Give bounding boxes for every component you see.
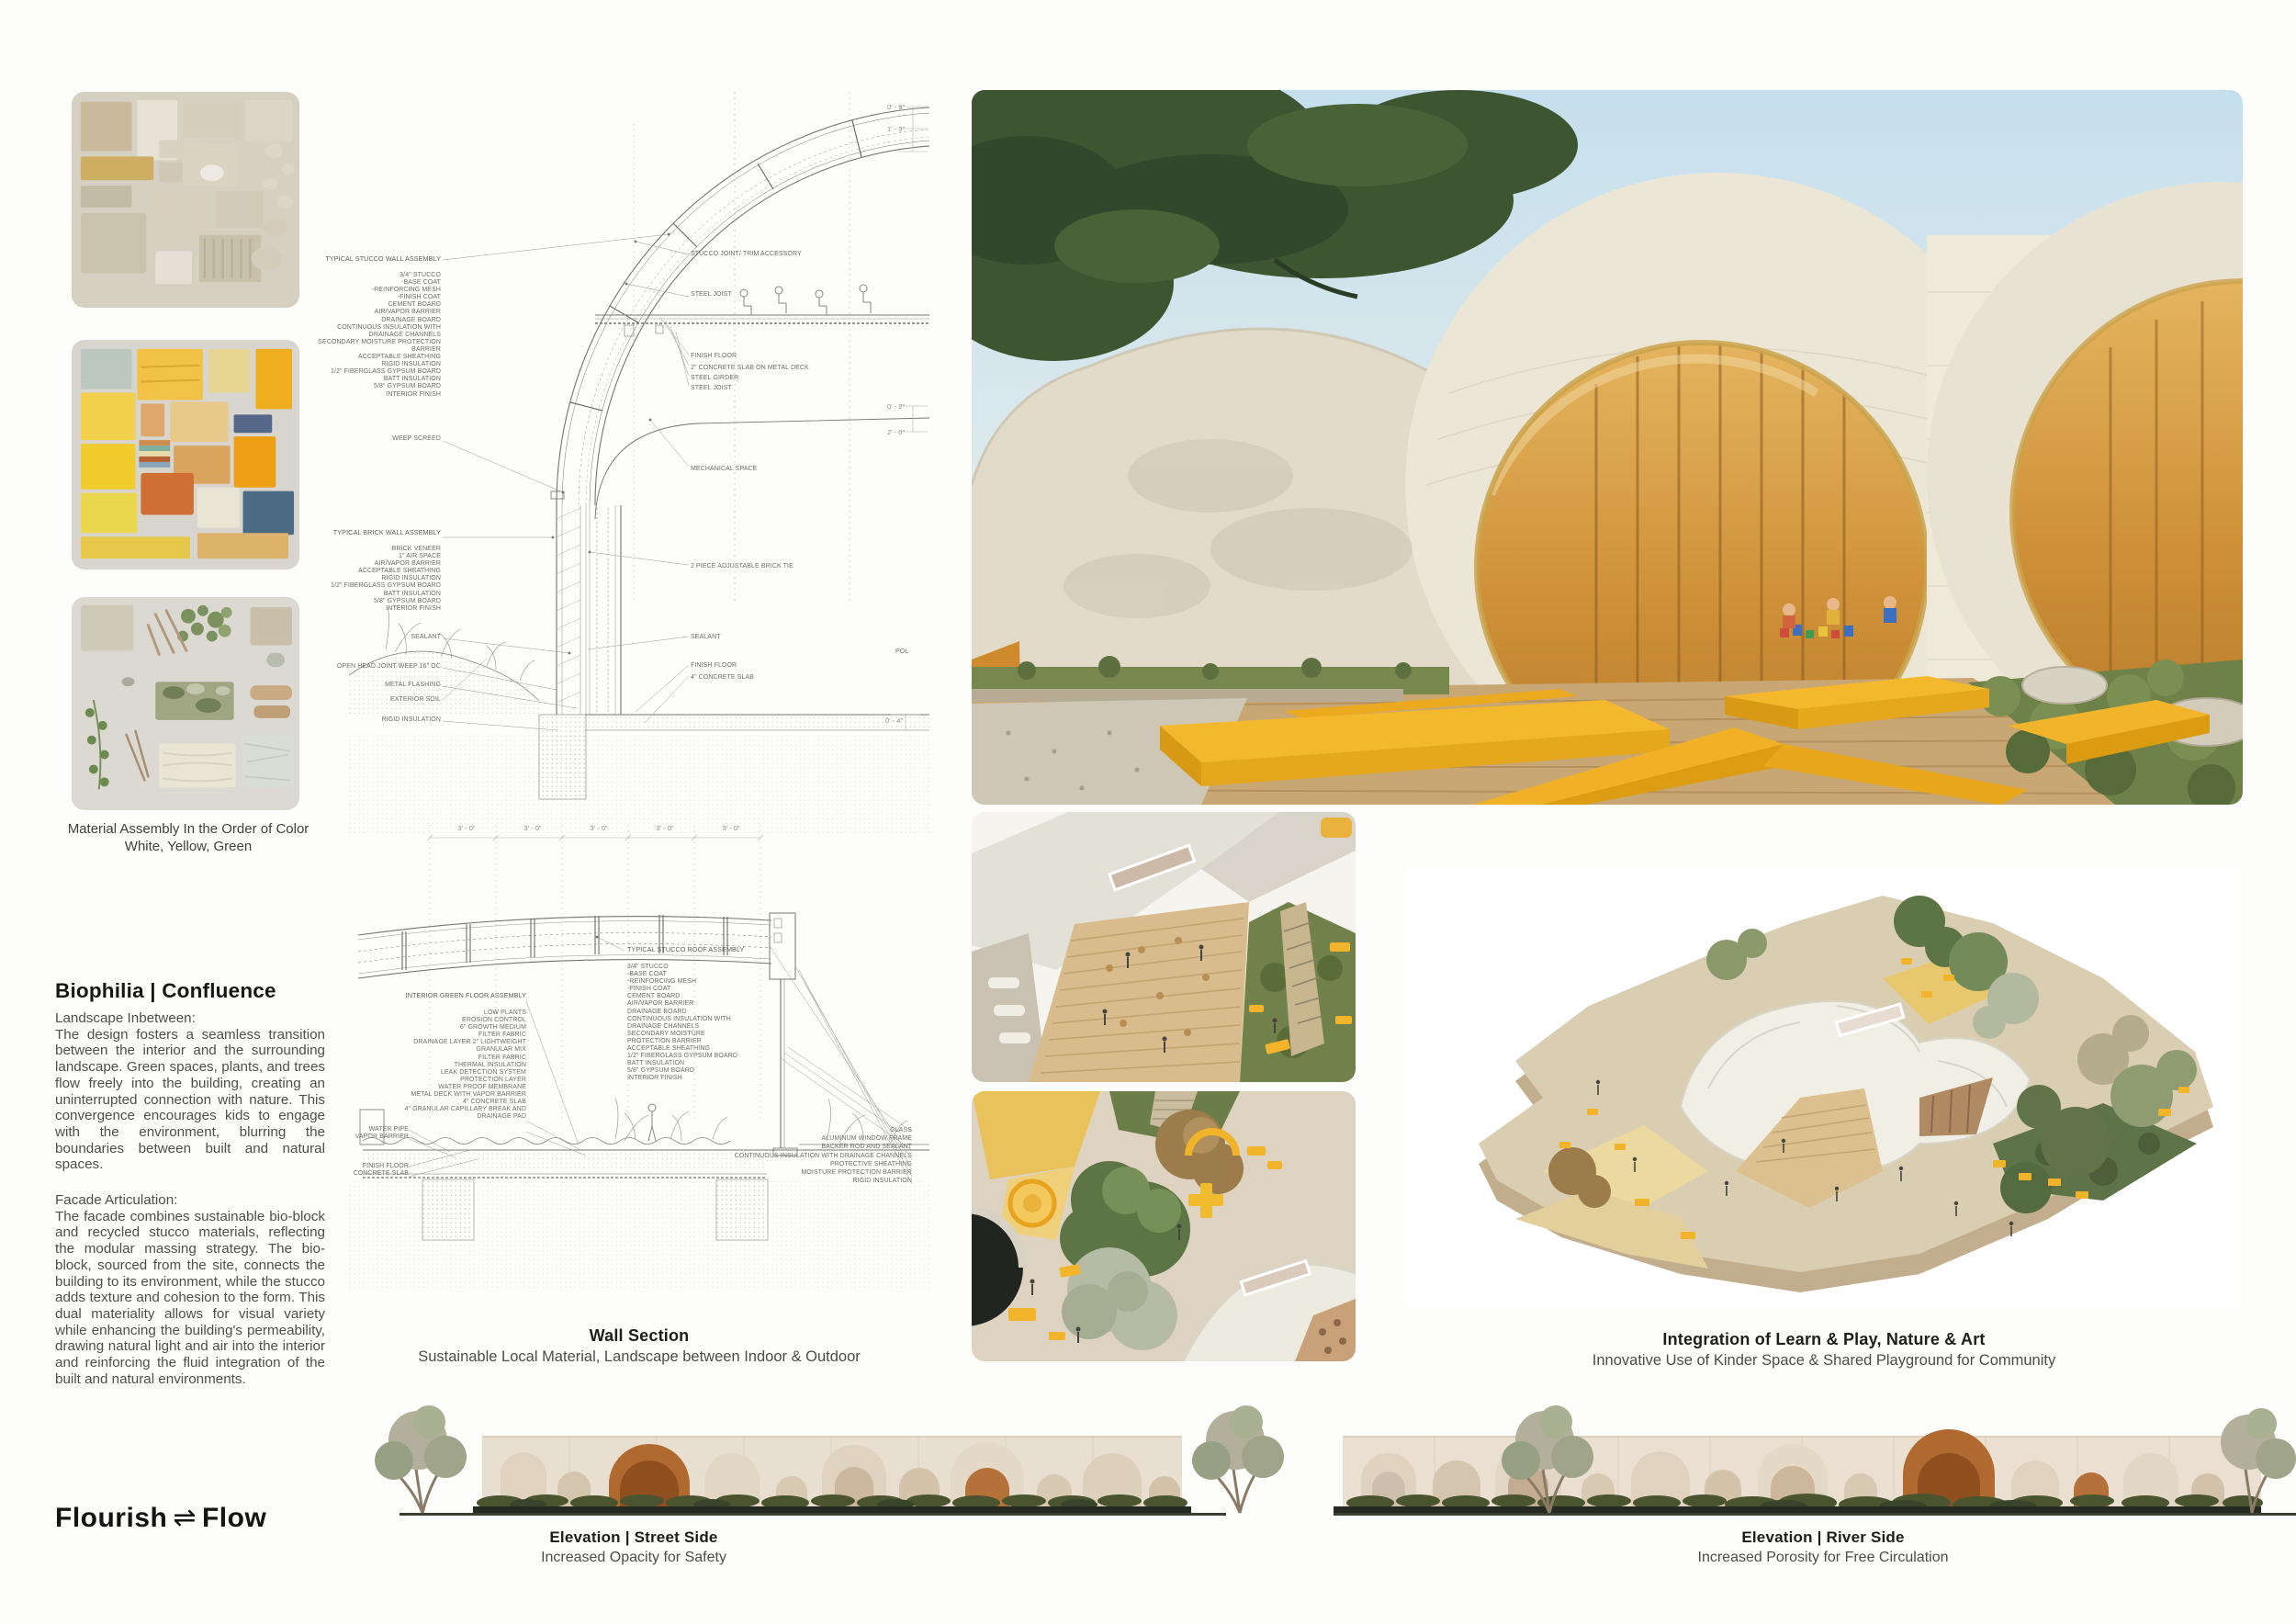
label-line: BATT INSULATION	[627, 1060, 811, 1067]
sealant-left-label: SEALANT	[276, 634, 441, 641]
label-line: 4" CONCRETE SLAB	[361, 1099, 526, 1106]
dim-3-0: 3' - 0"	[698, 824, 764, 832]
equilibrium-arrows-icon: ⇌	[167, 1503, 202, 1533]
wall-section-caption: Wall Section Sustainable Local Material,…	[349, 1326, 929, 1366]
dim-3-0: 3' - 0"	[566, 824, 632, 832]
label-line: -FINISH COAT	[627, 986, 811, 993]
label-line: SECONDARY MOISTURE PROTECTION	[276, 339, 441, 346]
steel-joist-label-1: STEEL JOIST	[691, 291, 732, 299]
finish-floor-label-1: FINISH FLOOR	[691, 353, 737, 360]
logo-word1: Flourish	[55, 1503, 167, 1533]
white-materials-image	[72, 92, 299, 308]
elevation-street-caption: Elevation | Street Side Increased Opacit…	[404, 1528, 863, 1566]
material-board-white	[72, 92, 299, 308]
dim-0-2: 0' - 2"	[887, 402, 905, 411]
main-render	[972, 90, 2243, 805]
elevation-street-image	[344, 1404, 1314, 1525]
dim-3-0: 3' - 0"	[632, 824, 698, 832]
mechanical-space-label: MECHANICAL SPACE	[691, 466, 757, 473]
sealant-right-label: SEALANT	[691, 634, 721, 641]
logo-word2: Flow	[202, 1503, 266, 1533]
brick-wall-list: BRICK VENEER1" AIR SPACEAIR/VAPOR BARRIE…	[276, 546, 441, 613]
wall-section-caption-title: Wall Section	[349, 1326, 929, 1346]
label-line: GRANULAR MIX	[361, 1046, 526, 1054]
label-line: GLASS	[655, 1126, 912, 1134]
yellow-materials-image	[72, 340, 299, 570]
label-line: BRICK VENEER	[276, 546, 441, 553]
label-line: RIGID INSULATION	[276, 361, 441, 368]
cutaway-render-2-image	[972, 1091, 1356, 1361]
elevation-river-caption: Elevation | River Side Increased Porosit…	[1593, 1528, 2053, 1566]
label-line: 5/8" GYPSUM BOARD	[627, 1067, 811, 1075]
green-materials-image	[72, 597, 299, 810]
label-line: -REINFORCING MESH	[276, 287, 441, 294]
label-line: 1/2" FIBERGLASS GYPSUM BOARD	[627, 1053, 811, 1060]
label-line: INTERIOR FINISH	[627, 1075, 811, 1082]
paragraph-facade-title: Facade Articulation:	[55, 1192, 325, 1209]
label-line: BATT INSULATION	[276, 591, 441, 598]
elevation-river-title: Elevation | River Side	[1593, 1528, 2053, 1547]
label-line: BACKER ROD AND SEALANT	[655, 1143, 912, 1151]
paragraph-facade: Facade Articulation: The facade combines…	[55, 1192, 325, 1387]
label-line: -BASE COAT	[627, 971, 811, 978]
stucco-roof-title: TYPICAL STUCCO ROOF ASSEMBLY	[627, 946, 811, 953]
label-line: CEMENT BOARD	[627, 993, 811, 1000]
water-pipe-pair: WATER PIPEVAPOR BARRIER	[317, 1126, 409, 1141]
label-line: PROTECTIVE SHEATHING	[655, 1160, 912, 1168]
materials-caption: Material Assembly In the Order of Color …	[37, 820, 340, 855]
window-assembly-list: GLASSALUMINUM WINDOW FRAMEBACKER ROD AND…	[655, 1126, 912, 1185]
stucco-wall-list: 3/4" STUCCO-BASE COAT-REINFORCING MESH-F…	[276, 272, 441, 399]
axon-caption-sub: Innovative Use of Kinder Space & Shared …	[1405, 1352, 2243, 1370]
label-line: DRAINAGE LAYER 2" LIGHTWEIGHT	[361, 1039, 526, 1046]
label-line: DRAINAGE BOARD	[276, 317, 441, 324]
label-line: THERMAL INSULATION	[361, 1062, 526, 1069]
label-line: SECONDARY MOISTURE	[627, 1031, 811, 1038]
paragraph-facade-body: The facade combines sustainable bio-bloc…	[55, 1209, 325, 1387]
green-floor-list: LOW PLANTSEROSION CONTROL6" GROWTH MEDIU…	[361, 1009, 526, 1121]
label-line: DRAINAGE PAD	[361, 1113, 526, 1121]
label-line: EROSION CONTROL	[361, 1017, 526, 1024]
dim-0-9: 0' - 9"	[887, 103, 905, 111]
axon-caption-title: Integration of Learn & Play, Nature & Ar…	[1405, 1330, 2243, 1349]
label-line: BARRIER	[276, 346, 441, 354]
label-line: PROTECTION BARRIER	[627, 1038, 811, 1045]
dim-0-4: 0' - 4"	[885, 716, 903, 725]
label-line: LEAK DETECTION SYSTEM	[361, 1069, 526, 1077]
elevation-street-sub: Increased Opacity for Safety	[404, 1550, 863, 1566]
green-floor-title: INTERIOR GREEN FLOOR ASSEMBLY	[361, 992, 526, 999]
label-line: -REINFORCING MESH	[627, 978, 811, 986]
axon-caption: Integration of Learn & Play, Nature & Ar…	[1405, 1330, 2243, 1370]
label-line: 4" GRANULAR CAPILLARY BREAK AND	[361, 1106, 526, 1113]
label-line: WATER PIPE	[317, 1126, 409, 1133]
brick-wall-title: TYPICAL BRICK WALL ASSEMBLY	[276, 529, 441, 536]
label-line: 1/2" FIBERGLASS GYPSUM BOARD	[276, 582, 441, 590]
material-board-yellow	[72, 340, 299, 570]
concrete-slab-metal-deck-label: 2" CONCRETE SLAB ON METAL DECK	[691, 365, 809, 372]
label-line: DRAINAGE CHANNELS	[627, 1023, 811, 1031]
label-line: RIGID INSULATION	[276, 575, 441, 582]
label-line: LOW PLANTS	[361, 1009, 526, 1017]
label-line: METAL DECK WITH VAPOR BARRIER	[361, 1091, 526, 1099]
finish-floor-pair: FINISH FLOORCONCRETE SLAB	[317, 1163, 409, 1178]
stucco-joint-label: STUCCO JOINT/ TRIM ACCESSORY	[691, 251, 802, 258]
cutaway-render-1	[972, 812, 1356, 1082]
label-line: DRAINAGE BOARD	[627, 1009, 811, 1016]
wall-section-caption-sub: Sustainable Local Material, Landscape be…	[349, 1348, 929, 1366]
label-line: 5/8" GYPSUM BOARD	[276, 383, 441, 390]
label-line: PROTECTION LAYER	[361, 1077, 526, 1084]
label-line: ACCEPTABLE SHEATHING	[276, 568, 441, 575]
pol-label: POL	[895, 648, 908, 656]
finish-floor-label-2: FINISH FLOOR	[691, 662, 737, 670]
label-line: ALUMINUM WINDOW FRAME	[655, 1134, 912, 1143]
label-line: RIGID INSULATION	[655, 1177, 912, 1185]
exterior-soil-label: EXTERIOR SOIL	[276, 696, 441, 704]
steel-joist-label-2: STEEL JOIST	[691, 385, 732, 392]
label-line: FINISH FLOOR	[317, 1163, 409, 1170]
label-line: CONTINUOUS INSULATION WITH	[627, 1016, 811, 1023]
dim-3-0: 3' - 0"	[433, 824, 500, 832]
label-line: CONTINUOUS INSULATION WITH	[276, 324, 441, 332]
presentation-board: Material Assembly In the Order of Color …	[0, 0, 2296, 1624]
label-line: ACCEPTABLE SHEATHING	[276, 354, 441, 361]
main-render-image	[972, 90, 2243, 805]
materials-caption-line1: Material Assembly In the Order of Color	[37, 820, 340, 838]
section-heading: Biophilia | Confluence	[55, 979, 276, 1003]
rigid-insulation-label: RIGID INSULATION	[276, 716, 441, 724]
materials-caption-line2: White, Yellow, Green	[37, 838, 340, 855]
dim-3-0: 3' - 0"	[500, 824, 566, 832]
label-line: DRAINAGE CHANNELS	[276, 332, 441, 339]
dim-1-3: 1' - 3"	[887, 125, 905, 133]
label-line: -BASE COAT	[276, 279, 441, 287]
cutaway-render-2	[972, 1091, 1356, 1361]
paragraph-landscape-title: Landscape Inbetween:	[55, 1010, 325, 1027]
elevation-river-sub: Increased Porosity for Free Circulation	[1593, 1550, 2053, 1566]
label-line: CONTINUOUS INSULATION WITH DRAINAGE CHAN…	[655, 1152, 912, 1160]
label-line: BATT INSULATION	[276, 376, 441, 383]
stucco-roof-list: 3/4" STUCCO-BASE COAT-REINFORCING MESH-F…	[627, 964, 811, 1083]
open-head-joint-label: OPEN HEAD JOINT WEEP 16" OC	[276, 663, 441, 671]
label-line: 3/4" STUCCO	[276, 272, 441, 279]
steel-girder-label: STEEL GIRDER	[691, 375, 738, 382]
label-line: ACCEPTABLE SHEATHING	[627, 1045, 811, 1053]
paragraph-landscape-body: The design fosters a seamless transition…	[55, 1027, 325, 1173]
lower-top-dims: 3' - 0"3' - 0"3' - 0"3' - 0"3' - 0"	[433, 824, 764, 832]
label-line: 1/2" FIBERGLASS GYPSUM BOARD	[276, 368, 441, 376]
label-line: -FINISH COAT	[276, 294, 441, 301]
label-line: AIR/VAPOR BARRIER	[276, 560, 441, 568]
cutaway-render-1-image	[972, 812, 1356, 1082]
label-line: 5/8" GYPSUM BOARD	[276, 598, 441, 605]
label-line: 6" GROWTH MEDIUM	[361, 1024, 526, 1032]
label-line: CEMENT BOARD	[276, 301, 441, 309]
label-line: MOISTURE PROTECTION BARRIER	[655, 1168, 912, 1177]
material-board-green	[72, 597, 299, 810]
elevation-street-title: Elevation | Street Side	[404, 1528, 863, 1547]
stucco-wall-title: TYPICAL STUCCO WALL ASSEMBLY	[276, 255, 441, 263]
label-line: 1" AIR SPACE	[276, 553, 441, 560]
label-line: AIR/VAPOR BARRIER	[627, 1000, 811, 1008]
paragraph-landscape: Landscape Inbetween: The design fosters …	[55, 1010, 325, 1173]
brick-tie-label: 2 PIECE ADJUSTABLE BRICK TIE	[691, 563, 793, 570]
label-line: INTERIOR FINISH	[276, 391, 441, 399]
label-line: FILTER FABRIC	[361, 1032, 526, 1039]
label-line: AIR/VAPOR BARRIER	[276, 309, 441, 316]
project-logo: Flourish⇌Flow	[55, 1502, 266, 1534]
label-line: WATER PROOF MEMBRANE	[361, 1084, 526, 1091]
axonometric-render	[1405, 868, 2241, 1307]
metal-flashing-label: METAL FLASHING	[276, 682, 441, 689]
label-line: VAPOR BARRIER	[317, 1133, 409, 1141]
label-line: FILTER FABRIC	[361, 1054, 526, 1062]
label-line: INTERIOR FINISH	[276, 605, 441, 613]
elevation-river-image	[1315, 1404, 2296, 1525]
label-line: 3/4" STUCCO	[627, 964, 811, 971]
dim-2-0: 2' - 0"	[887, 428, 905, 436]
weep-screed-label: WEEP SCREED	[276, 435, 441, 443]
label-line: CONCRETE SLAB	[317, 1170, 409, 1178]
concrete-slab4-label: 4" CONCRETE SLAB	[691, 674, 754, 682]
